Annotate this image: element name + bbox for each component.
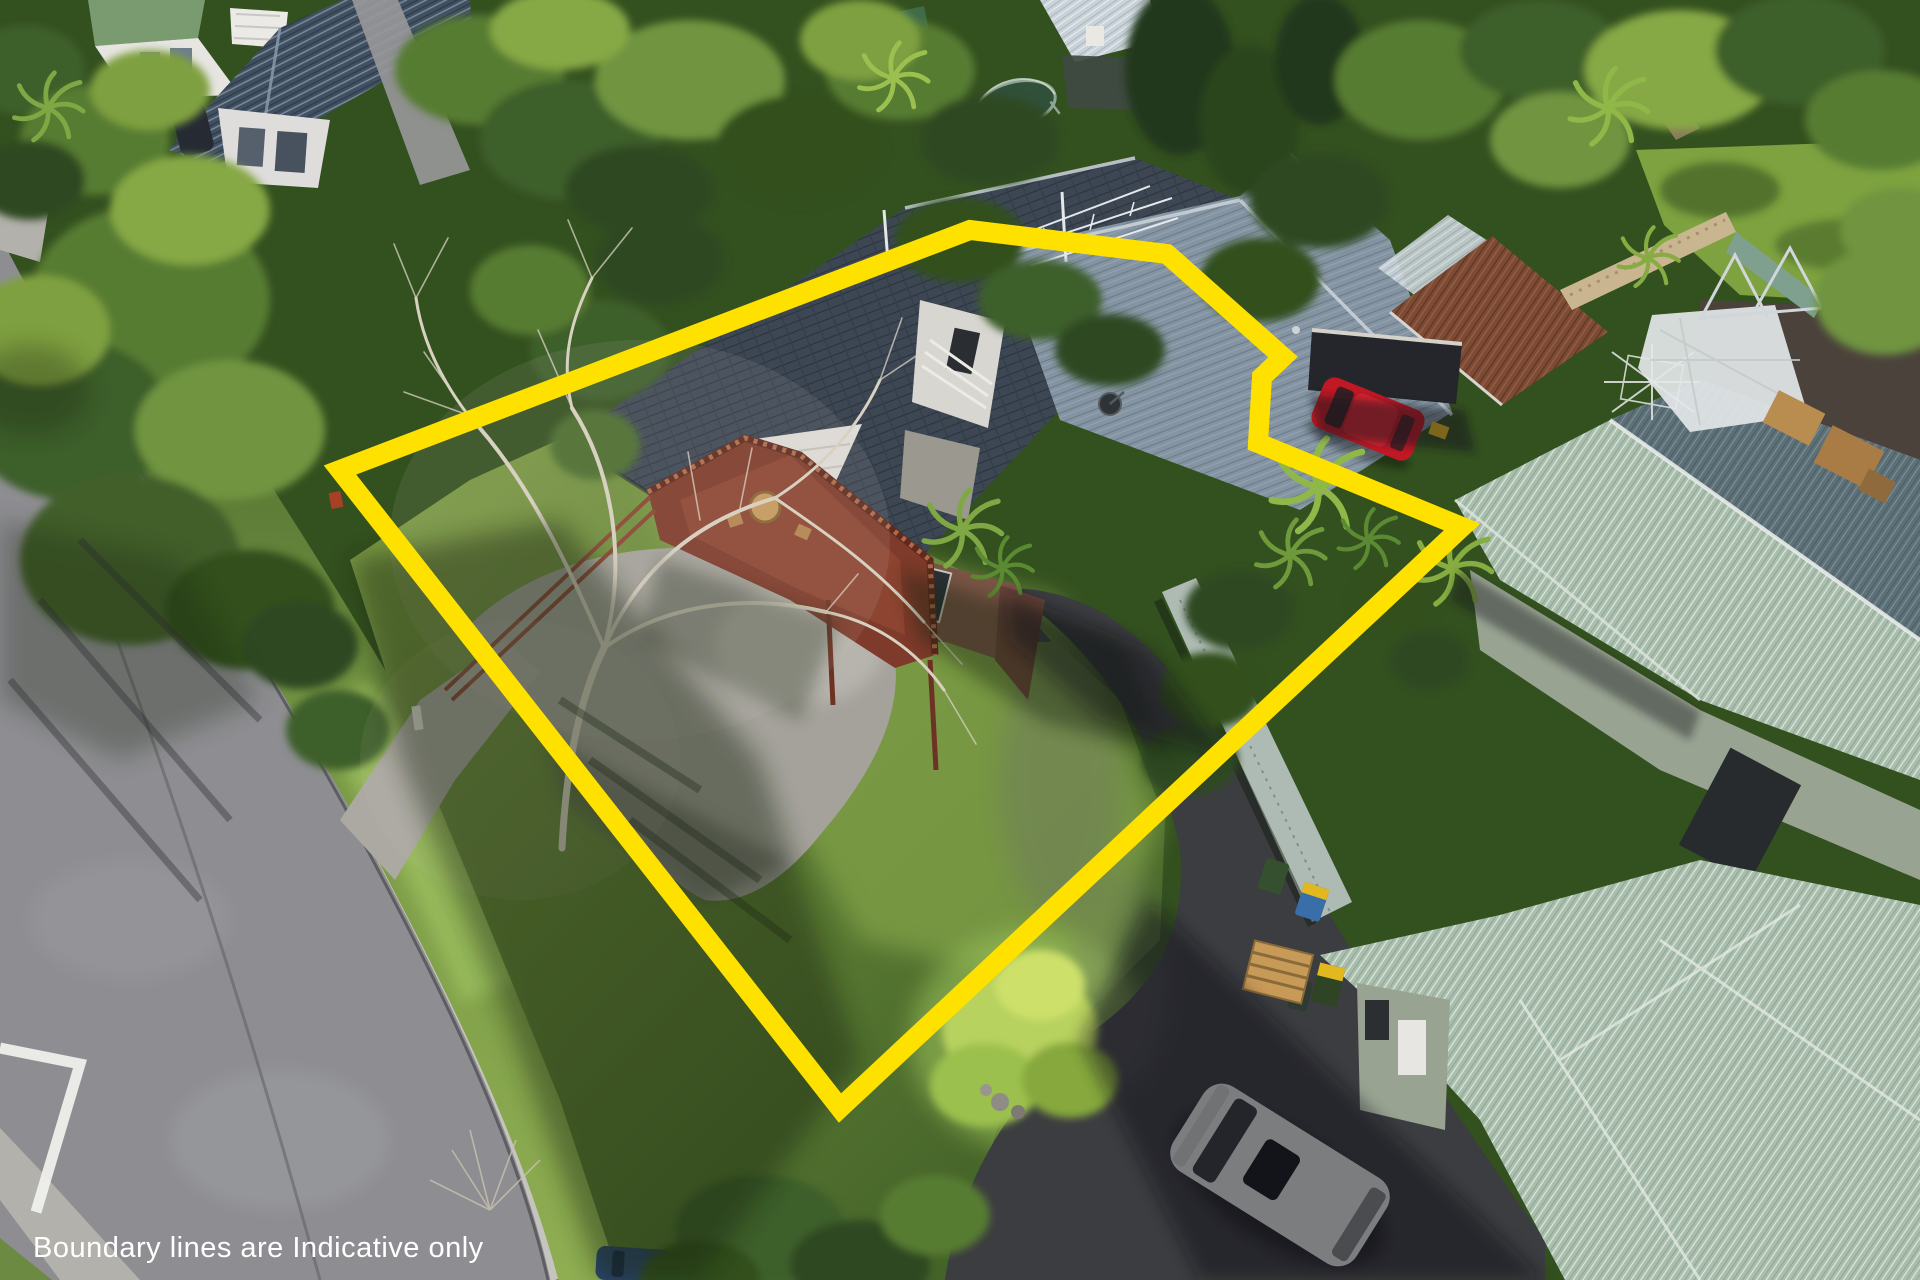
rear-lawn-shadow [1660, 162, 1780, 218]
window [237, 127, 266, 167]
aerial-photo-canvas: Boundary lines are Indicative only [0, 0, 1920, 1280]
door-frame-white[interactable] [1398, 1020, 1426, 1075]
window [275, 131, 308, 173]
caption: Boundary lines are Indicative only [33, 1232, 484, 1264]
roof-vent [1292, 326, 1300, 334]
white-chimney [1086, 26, 1104, 46]
aerial-photo: Boundary lines are Indicative only [0, 0, 1920, 1280]
window-dark[interactable] [1365, 1000, 1389, 1040]
